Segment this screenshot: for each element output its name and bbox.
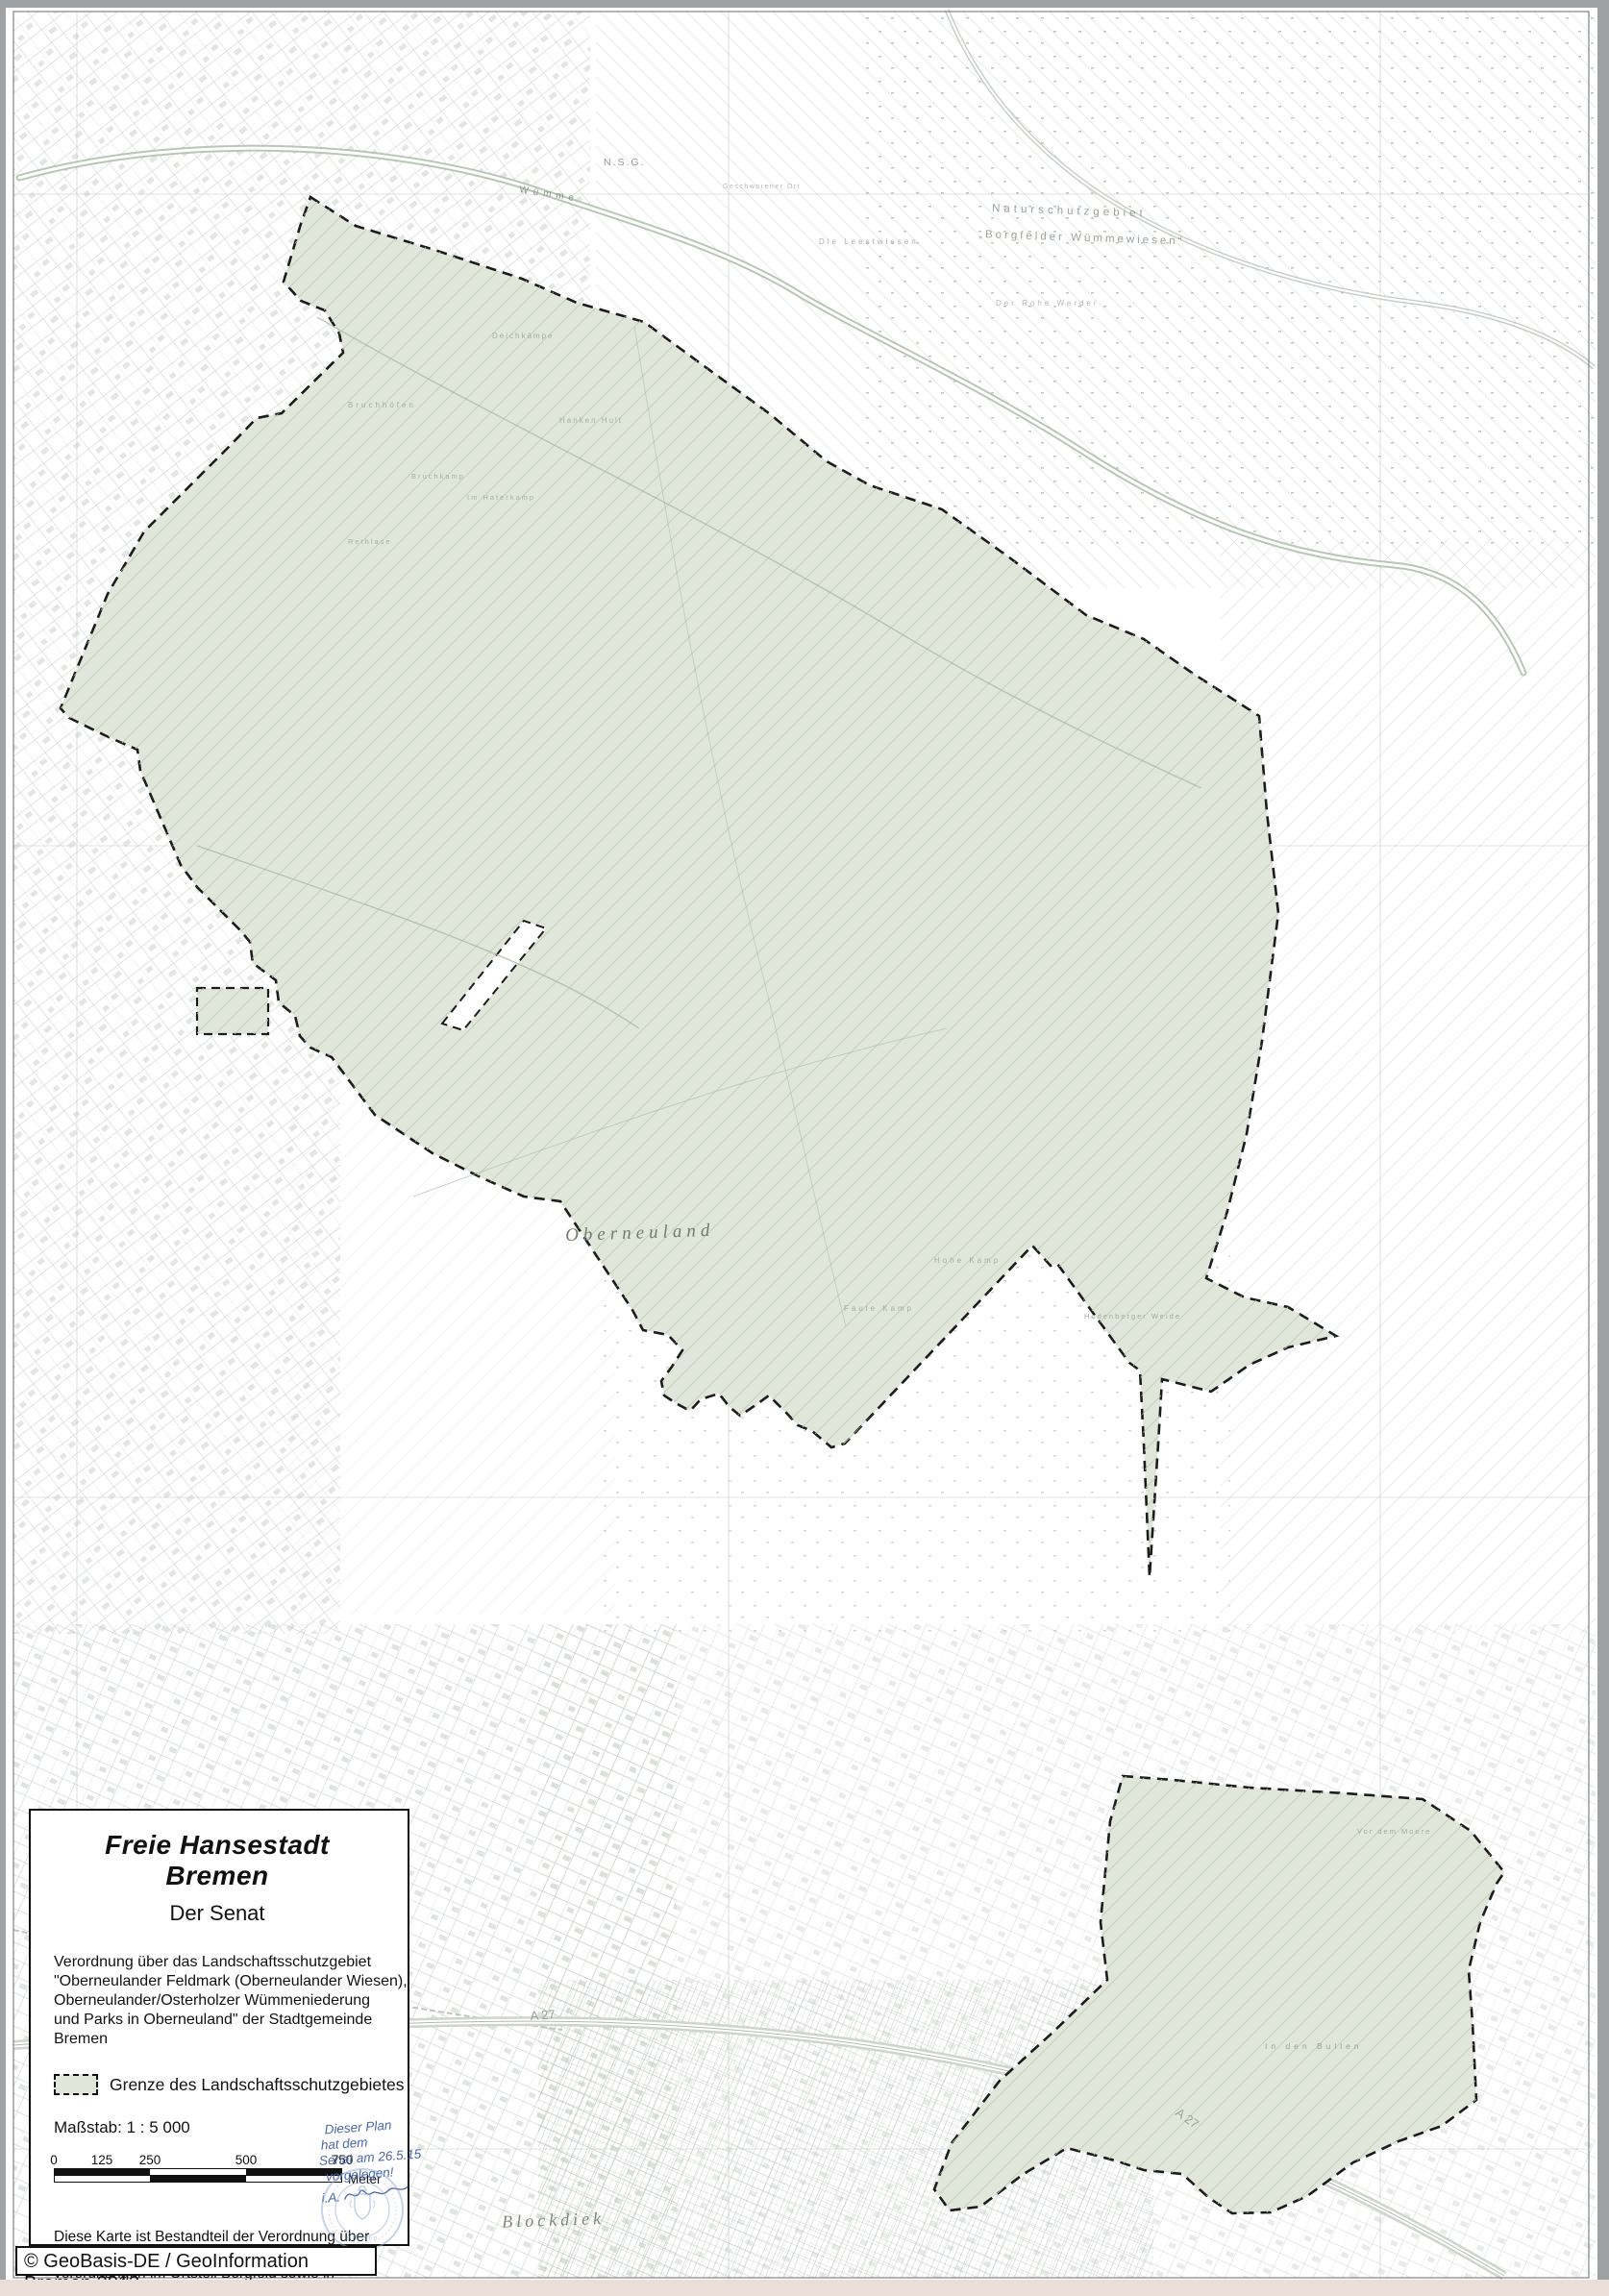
ordinance-line: und Parks in Oberneuland" der Stadtgemei… xyxy=(54,2011,408,2049)
label-hanken-hult: Hanken Hult xyxy=(559,416,623,425)
label-rethlase: Rethlase xyxy=(348,537,392,546)
ordinance-line: Verordnung über das Landschaftsschutzgeb… xyxy=(54,1953,408,1972)
scale-bar-graphic xyxy=(54,2168,342,2183)
copyright-bar: © GeoBasis-DE / GeoInformation Bremen 20… xyxy=(15,2246,377,2276)
ordinance-text: Verordnung über das Landschaftsschutzgeb… xyxy=(54,1953,408,2049)
legend-subtitle: Der Senat xyxy=(54,1901,381,1926)
scanned-map-page: N.S.G. Wümme Naturschutzgebiet „Borgfeld… xyxy=(0,0,1609,2296)
label-a27-west: A 27 xyxy=(530,2007,556,2023)
label-deichkaempe: Deichkämpe xyxy=(492,332,554,340)
scale-tick: 125 xyxy=(91,2153,113,2167)
scale-tick: 250 xyxy=(139,2153,161,2167)
label-hohe-kamp: Hohe Kamp xyxy=(934,1256,1001,1265)
ordinance-line: "Oberneulander Feldmark (Oberneulander W… xyxy=(54,1972,408,1991)
official-stamp: Bremen xyxy=(320,2167,405,2252)
protected-area-detached xyxy=(197,988,268,1034)
scan-edge-strip xyxy=(0,2280,1609,2296)
label-haterkamp: Im Haterkamp xyxy=(467,493,535,502)
label-nsg: N.S.G. xyxy=(604,157,646,168)
label-blockdiek: Blockdiek xyxy=(502,2209,606,2232)
legend-area-label: Grenze des Landschaftsschutzgebietes xyxy=(110,2075,404,2095)
legend-title: Freie Hansestadt Bremen xyxy=(54,1830,381,1891)
label-leestwiesen: Die Leestwiesen xyxy=(819,237,919,246)
stamp-city-text: Bremen xyxy=(346,2234,379,2242)
scale-tick: 0 xyxy=(50,2153,58,2167)
scale-tick: 500 xyxy=(235,2153,258,2167)
label-vor-dem-moore: Vor dem Moore xyxy=(1357,1827,1431,1836)
label-geschworener-ort: Geschworener Ort xyxy=(723,184,801,190)
label-bruchhoefen: Bruchhöfen xyxy=(348,401,416,409)
ordinance-line: Oberneulander/Osterholzer Wümmeniederung xyxy=(54,1991,408,2011)
stamp-crest-icon xyxy=(355,2186,370,2219)
scale-bar: 0 125 250 500 750 Meter xyxy=(54,2153,342,2195)
label-bruchkamp: Bruchkamp xyxy=(411,472,465,481)
label-faule-kamp: Faule Kamp xyxy=(844,1304,914,1313)
label-rohe-werder: Der Rohe Werder xyxy=(996,299,1100,308)
copyright-text: © GeoBasis-DE / GeoInformation Bremen 20… xyxy=(24,2251,309,2280)
protected-area-swatch xyxy=(54,2074,98,2095)
scale-bar-ticks: 0 125 250 500 750 xyxy=(54,2153,342,2168)
legend-area-item: Grenze des Landschaftsschutzgebietes xyxy=(54,2074,408,2095)
label-hodenberger-weide: Hodenberger Weide xyxy=(1084,1312,1181,1321)
label-in-den-bullen: In den Bullen xyxy=(1265,2041,1363,2051)
map-sheet: N.S.G. Wümme Naturschutzgebiet „Borgfeld… xyxy=(6,8,1597,2280)
